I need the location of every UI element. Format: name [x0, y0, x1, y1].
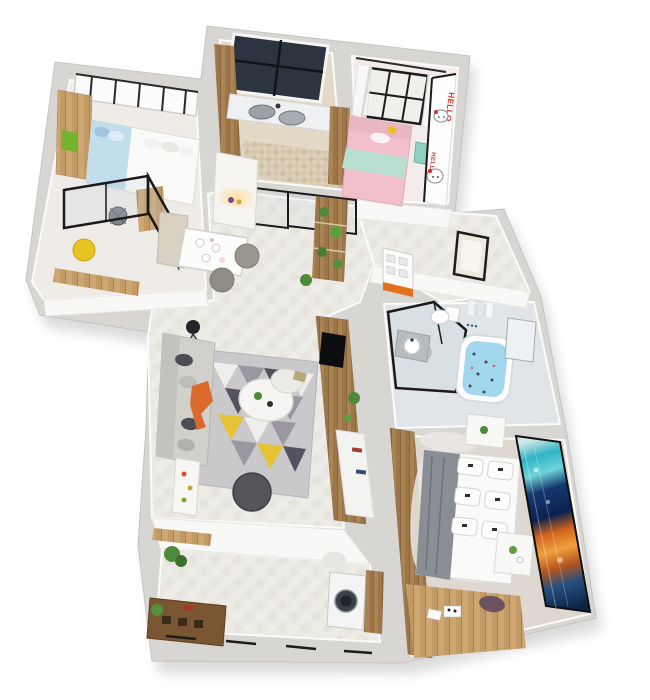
study-green-box — [61, 130, 78, 152]
floor-plan-render: HELLO HELLO — [0, 0, 650, 700]
fruit-2 — [237, 200, 242, 205]
study-yellow-pouf — [73, 239, 95, 261]
ladder-shelf — [312, 196, 348, 282]
kitchen-faucet — [276, 104, 281, 109]
room-kids-bedroom: HELLO HELLO — [342, 58, 456, 206]
crate-plant — [151, 604, 163, 616]
nightstand-vase — [517, 557, 523, 563]
shelf-plant-2 — [330, 226, 342, 238]
sink-faucet — [410, 338, 414, 342]
shelf-plant-4 — [333, 259, 343, 269]
entry-door — [383, 248, 413, 297]
window-desk — [406, 584, 526, 658]
floor-plant — [300, 274, 312, 286]
kids-yellow-toy — [388, 126, 396, 134]
shelf-plant-1 — [319, 207, 329, 217]
nightstand-plant-2 — [509, 546, 517, 554]
bath-mirror-panel — [505, 318, 536, 362]
coffee-table-clock — [267, 401, 273, 407]
sofa-side-table — [172, 458, 200, 516]
vanity-sink — [395, 330, 430, 362]
coffee-table-plant — [254, 392, 262, 400]
fruit-bowl — [228, 197, 234, 203]
balcony-cabinet-wood — [364, 570, 384, 634]
tv-plant-1 — [348, 392, 360, 404]
desk-tray — [444, 606, 461, 617]
nightstand-top — [465, 414, 506, 448]
entry-window-pane — [460, 239, 482, 273]
nightstand-bottom — [494, 532, 534, 576]
pouf — [233, 473, 271, 511]
tv-plant-2 — [344, 414, 352, 422]
sofa — [156, 333, 215, 466]
kitty-face-2 — [427, 169, 443, 183]
nightstand-plant-1 — [480, 426, 488, 434]
laundry-pile — [322, 552, 346, 568]
bath-towels — [467, 300, 494, 319]
kitty-face-1 — [434, 110, 448, 122]
shoe-cabinet — [213, 152, 258, 230]
floor-plan-canvas: HELLO HELLO — [0, 0, 650, 700]
shelf-plant-3 — [317, 247, 327, 257]
tv-screen — [319, 332, 346, 368]
crate-red-label — [184, 606, 194, 610]
bathtub-water — [461, 340, 508, 398]
